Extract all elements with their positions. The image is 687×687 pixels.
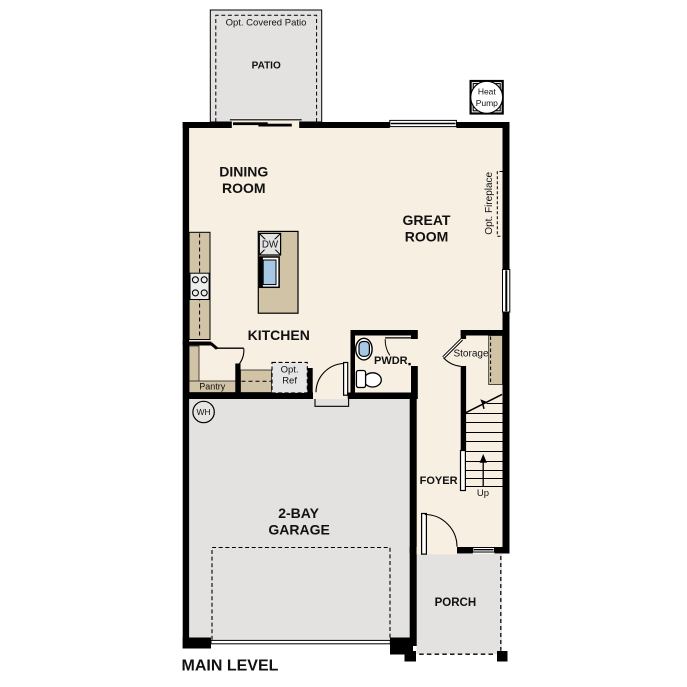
svg-text:Ref: Ref xyxy=(282,375,297,386)
svg-text:PATIO: PATIO xyxy=(252,60,281,71)
svg-text:Storage: Storage xyxy=(453,348,488,359)
svg-text:PWDR: PWDR xyxy=(374,355,408,367)
svg-text:GARAGE: GARAGE xyxy=(268,521,329,537)
svg-text:Pantry: Pantry xyxy=(199,382,226,392)
svg-text:WH: WH xyxy=(197,407,211,417)
svg-text:DINING: DINING xyxy=(219,163,268,179)
svg-text:GREAT: GREAT xyxy=(403,212,451,228)
svg-text:DW: DW xyxy=(262,239,279,250)
svg-text:Opt. Covered Patio: Opt. Covered Patio xyxy=(226,17,307,28)
svg-text:ROOM: ROOM xyxy=(405,229,449,245)
svg-text:MAIN LEVEL: MAIN LEVEL xyxy=(182,657,279,674)
svg-text:Opt.: Opt. xyxy=(281,364,299,375)
svg-text:PORCH: PORCH xyxy=(435,597,477,609)
svg-text:Up: Up xyxy=(477,488,489,499)
svg-text:Opt. Fireplace: Opt. Fireplace xyxy=(484,171,495,234)
svg-text:ROOM: ROOM xyxy=(222,180,266,196)
svg-text:Heat: Heat xyxy=(478,87,497,97)
svg-text:KITCHEN: KITCHEN xyxy=(248,327,310,343)
svg-text:Pump: Pump xyxy=(476,98,498,108)
svg-text:FOYER: FOYER xyxy=(420,475,458,487)
svg-text:2-BAY: 2-BAY xyxy=(278,505,319,521)
